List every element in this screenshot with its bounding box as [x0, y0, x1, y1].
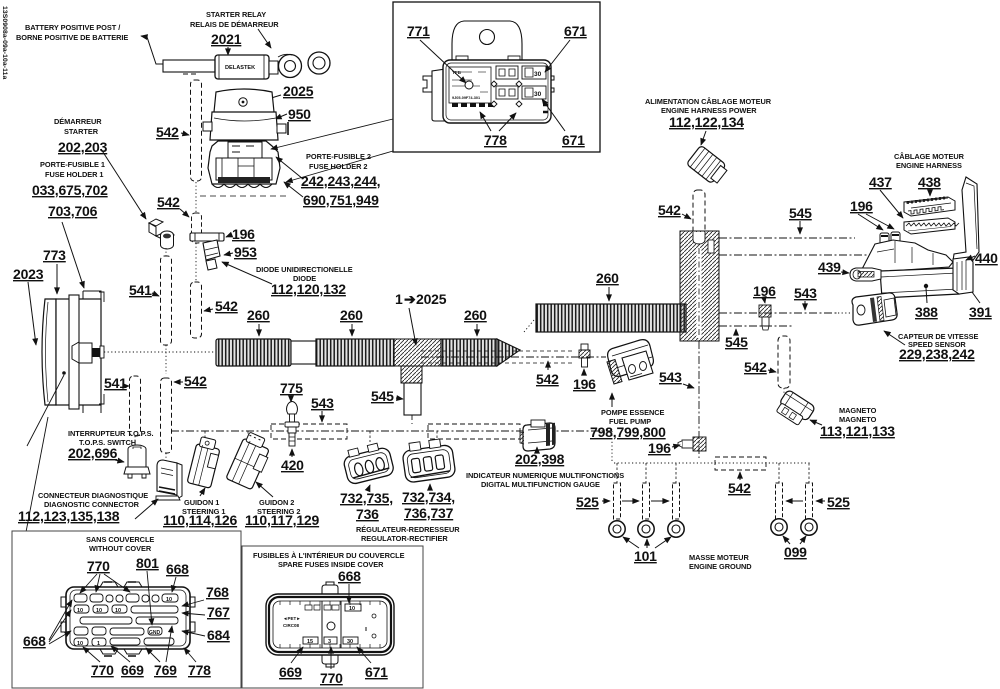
svg-text:778: 778 [484, 132, 507, 148]
svg-text:DELASTEK: DELASTEK [225, 65, 255, 71]
svg-text:POMPE ESSENCE: POMPE ESSENCE [601, 408, 665, 417]
svg-text:202,696: 202,696 [68, 445, 118, 461]
svg-text:438: 438 [918, 174, 941, 190]
svg-text:113,121,133: 113,121,133 [820, 423, 895, 439]
svg-text:769: 769 [154, 662, 177, 678]
svg-text:542: 542 [728, 480, 751, 496]
svg-text:110,117,129: 110,117,129 [245, 512, 320, 528]
svg-text:420: 420 [281, 457, 304, 473]
svg-text:671: 671 [562, 132, 585, 148]
svg-text:260: 260 [464, 307, 487, 323]
svg-text:30: 30 [534, 71, 542, 78]
svg-text:669: 669 [279, 664, 302, 680]
svg-text:668: 668 [166, 561, 189, 577]
svg-text:770: 770 [320, 670, 343, 686]
svg-text:PORTE-FUSIBLE 1: PORTE-FUSIBLE 1 [40, 160, 105, 169]
svg-text:FUSIBLES À L'INTÉRIEUR DU COUV: FUSIBLES À L'INTÉRIEUR DU COUVERCLE [253, 551, 405, 560]
svg-text:15: 15 [307, 639, 313, 645]
svg-text:736: 736 [356, 506, 379, 522]
svg-text:DIGITAL MULTIFUNCTION GAUGE: DIGITAL MULTIFUNCTION GAUGE [481, 480, 600, 489]
svg-text:229,238,242: 229,238,242 [899, 346, 975, 362]
svg-text:388: 388 [915, 304, 938, 320]
svg-text:CONNECTEUR DIAGNOSTIQUE: CONNECTEUR DIAGNOSTIQUE [38, 491, 148, 500]
svg-text:CIRC08: CIRC08 [283, 623, 300, 628]
svg-text:30: 30 [534, 91, 542, 98]
svg-text:668: 668 [338, 568, 361, 584]
svg-text:30: 30 [347, 639, 353, 645]
svg-text:542: 542 [215, 298, 238, 314]
svg-text:196: 196 [648, 440, 671, 456]
svg-text:542: 542 [658, 202, 681, 218]
svg-text:2025: 2025 [283, 83, 314, 99]
svg-text:736,737: 736,737 [404, 505, 454, 521]
svg-text:684: 684 [207, 627, 230, 643]
svg-text:260: 260 [247, 307, 270, 323]
svg-text:542: 542 [744, 359, 767, 375]
svg-text:10: 10 [166, 597, 172, 603]
svg-text:242,243,244,: 242,243,244, [301, 173, 380, 189]
svg-text:525: 525 [576, 494, 599, 510]
svg-text:3: 3 [328, 639, 331, 645]
svg-text:STARTER: STARTER [64, 127, 99, 136]
svg-text:773: 773 [43, 247, 66, 263]
svg-text:STARTER RELAY: STARTER RELAY [206, 10, 266, 19]
svg-text:INDICATEUR NUMERIQUE MULTIFONC: INDICATEUR NUMERIQUE MULTIFONCTIONS [466, 471, 624, 480]
svg-text:PORTE-FUSIBLE 2: PORTE-FUSIBLE 2 [306, 152, 371, 161]
svg-text:GUIDON 1: GUIDON 1 [184, 498, 219, 507]
svg-text:ENGINE HARNESS: ENGINE HARNESS [896, 161, 962, 170]
svg-text:10: 10 [77, 641, 83, 647]
svg-text:260: 260 [596, 270, 619, 286]
svg-text:542: 542 [536, 371, 559, 387]
svg-text:543: 543 [794, 285, 817, 301]
svg-text:669: 669 [121, 662, 144, 678]
svg-text:542: 542 [157, 194, 180, 210]
svg-text:775: 775 [280, 380, 303, 396]
svg-text:RÉGULATEUR-REDRESSEUR: RÉGULATEUR-REDRESSEUR [356, 525, 460, 534]
svg-text:437: 437 [869, 174, 892, 190]
svg-text:542: 542 [156, 124, 179, 140]
svg-text:543: 543 [311, 395, 334, 411]
svg-text:732,734,: 732,734, [402, 489, 455, 505]
svg-text:GND: GND [149, 630, 161, 636]
svg-text:WITHOUT COVER: WITHOUT COVER [89, 544, 152, 553]
svg-text:202,203: 202,203 [58, 139, 108, 155]
svg-text:542: 542 [184, 373, 207, 389]
svg-text:543: 543 [659, 369, 682, 385]
svg-text:798,799,800: 798,799,800 [590, 424, 666, 440]
svg-text:950: 950 [288, 106, 311, 122]
svg-text:112,123,135,138: 112,123,135,138 [18, 508, 120, 524]
svg-text:SANS COUVERCLE: SANS COUVERCLE [86, 535, 154, 544]
svg-text:196: 196 [850, 198, 873, 214]
svg-text:440: 440 [975, 250, 998, 266]
svg-text:BATTERY POSITIVE POST /: BATTERY POSITIVE POST / [25, 23, 120, 32]
svg-text:525: 525 [827, 494, 850, 510]
svg-text:770: 770 [91, 662, 114, 678]
svg-text:112,122,134: 112,122,134 [669, 114, 744, 130]
svg-text:DIODE UNIDIRECTIONELLE: DIODE UNIDIRECTIONELLE [256, 265, 353, 274]
svg-text:112,120,132: 112,120,132 [271, 281, 346, 297]
svg-text:ALIMENTATION CÂBLAGE MOTEUR: ALIMENTATION CÂBLAGE MOTEUR [645, 97, 772, 106]
svg-text:768: 768 [206, 584, 229, 600]
svg-text:9J05-09F74-301: 9J05-09F74-301 [452, 96, 480, 100]
svg-text:545: 545 [371, 388, 394, 404]
svg-text:CÂBLAGE MOTEUR: CÂBLAGE MOTEUR [894, 152, 965, 161]
svg-text:2021: 2021 [211, 31, 242, 47]
svg-text:545: 545 [789, 205, 812, 221]
svg-text:778: 778 [188, 662, 211, 678]
svg-text:13S0908a-09a-10a-11a: 13S0908a-09a-10a-11a [1, 6, 8, 80]
svg-text:767: 767 [207, 604, 230, 620]
svg-text:541: 541 [129, 282, 152, 298]
svg-text:2023: 2023 [13, 266, 44, 282]
svg-text:INTERRUPTEUR T.O.P.S.: INTERRUPTEUR T.O.P.S. [68, 429, 153, 438]
svg-text:671: 671 [564, 23, 587, 39]
svg-text:033,675,702: 033,675,702 [32, 182, 108, 198]
svg-text:GUIDON 2: GUIDON 2 [259, 498, 294, 507]
svg-text:101: 101 [634, 548, 657, 564]
svg-text:260: 260 [340, 307, 363, 323]
svg-text:MASSE MOTEUR: MASSE MOTEUR [689, 553, 749, 562]
svg-text:1: 1 [395, 291, 403, 307]
svg-text:10: 10 [77, 608, 83, 614]
svg-text:2025: 2025 [416, 291, 447, 307]
svg-text:DÉMARREUR: DÉMARREUR [54, 117, 102, 126]
svg-text:MAGNETO: MAGNETO [839, 406, 877, 415]
svg-text:690,751,949: 690,751,949 [303, 192, 379, 208]
svg-text:732,735,: 732,735, [340, 490, 393, 506]
svg-text:1: 1 [97, 641, 100, 647]
svg-text:668: 668 [23, 633, 46, 649]
svg-text:801: 801 [136, 555, 159, 571]
svg-text:439: 439 [818, 259, 841, 275]
svg-text:391: 391 [969, 304, 992, 320]
svg-text:110,114,126: 110,114,126 [163, 512, 238, 528]
svg-text:FUSE HOLDER 1: FUSE HOLDER 1 [45, 170, 103, 179]
svg-text:202,398: 202,398 [515, 451, 565, 467]
svg-text:541: 541 [104, 375, 127, 391]
svg-text:771: 771 [407, 23, 430, 39]
svg-text:099: 099 [784, 544, 807, 560]
svg-text:953: 953 [234, 244, 257, 260]
svg-text:703,706: 703,706 [48, 203, 98, 219]
svg-text:ENGINE GROUND: ENGINE GROUND [689, 562, 752, 571]
svg-text:671: 671 [365, 664, 388, 680]
svg-text:770: 770 [87, 558, 110, 574]
svg-text:545: 545 [725, 334, 748, 350]
svg-text:10: 10 [349, 606, 355, 612]
svg-text:REGULATOR-RECTIFIER: REGULATOR-RECTIFIER [361, 534, 448, 543]
svg-text:RELAIS DE DÉMARREUR: RELAIS DE DÉMARREUR [190, 20, 279, 29]
svg-text:➔: ➔ [404, 291, 416, 307]
svg-text:196: 196 [573, 376, 596, 392]
svg-text:SPARE FUSES INSIDE COVER: SPARE FUSES INSIDE COVER [278, 560, 384, 569]
svg-text:10: 10 [96, 608, 102, 614]
svg-text:BORNE POSITIVE DE BATTERIE: BORNE POSITIVE DE BATTERIE [16, 33, 128, 42]
svg-text:10: 10 [115, 608, 121, 614]
svg-text:◄PET►: ◄PET► [283, 616, 301, 621]
svg-text:196: 196 [753, 283, 776, 299]
svg-text:196: 196 [232, 226, 255, 242]
